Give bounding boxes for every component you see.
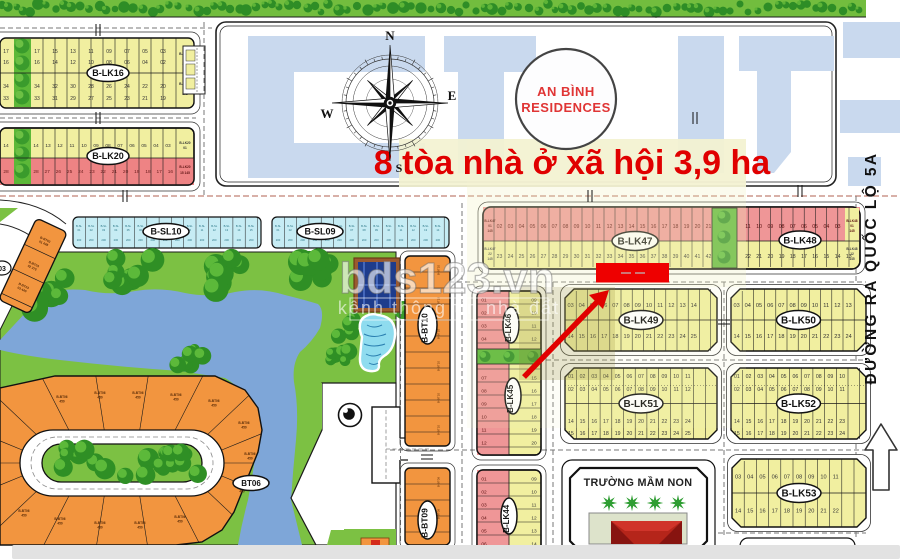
svg-text:16: 16 <box>756 334 762 340</box>
svg-text:03: 03 <box>102 228 105 232</box>
svg-text:19: 19 <box>160 96 166 102</box>
svg-text:ĐƯỜNG RA QUỐC LỘ 5A: ĐƯỜNG RA QUỐC LỘ 5A <box>862 151 880 384</box>
svg-text:450: 450 <box>241 426 247 430</box>
svg-text:AN BÌNH: AN BÌNH <box>537 84 595 99</box>
svg-text:19: 19 <box>781 431 787 437</box>
svg-text:450: 450 <box>21 514 27 518</box>
svg-text:200: 200 <box>89 238 94 242</box>
svg-text:200: 200 <box>200 238 205 242</box>
svg-text:11: 11 <box>833 475 839 481</box>
svg-text:B-BT06: B-BT06 <box>94 521 105 525</box>
svg-text:15 145: 15 145 <box>180 171 190 175</box>
svg-text:16: 16 <box>168 169 174 175</box>
svg-text:19: 19 <box>796 509 802 515</box>
svg-text:01: 01 <box>183 146 187 150</box>
svg-text:29: 29 <box>70 96 76 102</box>
svg-text:07: 07 <box>778 303 784 309</box>
svg-text:16: 16 <box>580 431 586 437</box>
svg-text:33: 33 <box>3 96 9 102</box>
svg-text:450: 450 <box>59 400 65 404</box>
svg-text:450: 450 <box>247 457 253 461</box>
svg-text:B-BT06: B-BT06 <box>134 521 145 525</box>
svg-text:26: 26 <box>56 169 62 175</box>
svg-text:05: 05 <box>141 143 147 149</box>
svg-text:14: 14 <box>3 143 9 149</box>
svg-text:200: 200 <box>187 238 192 242</box>
svg-text:B-BT10: B-BT10 <box>437 393 441 404</box>
svg-text:200: 200 <box>101 238 106 242</box>
svg-text:16: 16 <box>746 431 752 437</box>
svg-text:24: 24 <box>124 84 130 90</box>
svg-text:B-SL: B-SL <box>236 224 242 228</box>
svg-text:B-SL: B-SL <box>199 224 205 228</box>
svg-text:B-SL: B-SL <box>224 224 230 228</box>
svg-text:200: 200 <box>374 238 379 242</box>
svg-text:B-SL: B-SL <box>88 224 94 228</box>
svg-text:02: 02 <box>746 374 752 380</box>
svg-text:200: 200 <box>77 238 82 242</box>
svg-text:15: 15 <box>568 431 574 437</box>
svg-text:200: 200 <box>362 238 367 242</box>
svg-text:15: 15 <box>747 509 753 515</box>
svg-text:09: 09 <box>768 224 774 230</box>
svg-text:21: 21 <box>756 254 762 260</box>
svg-text:11: 11 <box>482 428 487 434</box>
svg-text:04: 04 <box>142 60 148 66</box>
svg-text:03: 03 <box>481 503 487 509</box>
svg-text:B-BT06: B-BT06 <box>132 391 143 395</box>
svg-text:200: 200 <box>126 238 131 242</box>
svg-text:B-SL: B-SL <box>287 224 293 228</box>
svg-text:14: 14 <box>436 228 439 232</box>
svg-text:17: 17 <box>757 431 763 437</box>
svg-text:18: 18 <box>778 334 784 340</box>
svg-text:23: 23 <box>662 431 668 437</box>
svg-text:09: 09 <box>816 387 822 393</box>
svg-text:200: 200 <box>399 238 404 242</box>
svg-text:B-BT06: B-BT06 <box>174 515 185 519</box>
svg-text:B-SL: B-SL <box>125 224 131 228</box>
svg-text:B-SL: B-SL <box>138 224 144 228</box>
svg-text:B-BT06: B-BT06 <box>238 421 249 425</box>
svg-text:04: 04 <box>824 224 830 230</box>
svg-text:B-BT06: B-BT06 <box>208 399 219 403</box>
svg-text:450: 450 <box>135 396 141 400</box>
svg-text:23: 23 <box>839 419 845 425</box>
svg-text:22: 22 <box>823 334 829 340</box>
svg-text:B-SL: B-SL <box>386 224 392 228</box>
svg-text:06: 06 <box>781 387 787 393</box>
svg-text:22: 22 <box>828 419 834 425</box>
svg-text:24: 24 <box>845 334 851 340</box>
svg-text:23: 23 <box>89 169 95 175</box>
svg-text:28: 28 <box>3 169 9 175</box>
svg-text:450: 450 <box>97 396 103 400</box>
svg-text:B-LK20: B-LK20 <box>179 141 190 145</box>
svg-text:22: 22 <box>101 169 107 175</box>
svg-text:17: 17 <box>157 169 163 175</box>
svg-text:22: 22 <box>650 431 656 437</box>
svg-text:08: 08 <box>796 475 802 481</box>
svg-text:450: 450 <box>211 404 217 408</box>
svg-text:17: 17 <box>591 431 597 437</box>
svg-text:17: 17 <box>34 49 40 55</box>
svg-text:28: 28 <box>33 169 39 175</box>
svg-text:200: 200 <box>350 238 355 242</box>
svg-text:05: 05 <box>481 529 487 535</box>
svg-text:15: 15 <box>824 254 830 260</box>
svg-text:21: 21 <box>820 509 826 515</box>
svg-text:16: 16 <box>34 60 40 66</box>
svg-text:20: 20 <box>804 419 810 425</box>
svg-text:B-BT06: B-BT06 <box>18 509 29 513</box>
svg-text:11: 11 <box>532 503 537 509</box>
svg-text:25: 25 <box>106 96 112 102</box>
svg-text:B-LK16: B-LK16 <box>92 68 124 78</box>
svg-text:B-SL: B-SL <box>373 224 379 228</box>
svg-text:06: 06 <box>124 60 130 66</box>
svg-text:01: 01 <box>850 224 854 228</box>
svg-text:19: 19 <box>615 431 621 437</box>
svg-text:20: 20 <box>626 431 632 437</box>
svg-text:01: 01 <box>78 228 81 232</box>
svg-text:B-LK48: B-LK48 <box>783 235 816 246</box>
svg-text:02: 02 <box>160 60 166 66</box>
svg-text:25: 25 <box>67 169 73 175</box>
svg-text:16: 16 <box>757 419 763 425</box>
svg-text:26: 26 <box>106 84 112 90</box>
svg-text:TRƯỜNG MẦM NON: TRƯỜNG MẦM NON <box>584 476 693 489</box>
svg-text:07: 07 <box>792 387 798 393</box>
svg-text:08: 08 <box>779 224 785 230</box>
svg-text:04: 04 <box>114 228 117 232</box>
svg-text:S: S <box>396 161 403 175</box>
svg-text:B-BT06: B-BT06 <box>54 517 65 521</box>
svg-text:04: 04 <box>153 143 159 149</box>
svg-text:24: 24 <box>673 431 679 437</box>
svg-text:B-BT06: B-BT06 <box>56 395 67 399</box>
svg-text:B-BT06: B-BT06 <box>94 391 105 395</box>
svg-text:11: 11 <box>201 228 204 232</box>
svg-text:B-SL: B-SL <box>187 224 193 228</box>
svg-text:B-BT09: B-BT09 <box>437 477 441 488</box>
svg-text:11: 11 <box>839 387 844 393</box>
svg-text:16: 16 <box>812 254 818 260</box>
svg-text:12: 12 <box>213 228 216 232</box>
svg-text:06: 06 <box>767 303 773 309</box>
svg-text:11: 11 <box>400 228 403 232</box>
svg-text:16: 16 <box>3 60 9 66</box>
svg-text:20: 20 <box>792 431 798 437</box>
svg-text:23: 23 <box>834 334 840 340</box>
svg-text:12: 12 <box>834 303 840 309</box>
svg-text:B-SL: B-SL <box>275 224 281 228</box>
svg-text:200: 200 <box>138 238 143 242</box>
svg-text:21: 21 <box>812 334 818 340</box>
svg-text:10: 10 <box>387 228 390 232</box>
svg-text:200: 200 <box>288 238 293 242</box>
svg-text:07: 07 <box>350 228 353 232</box>
svg-text:B-SL: B-SL <box>423 224 429 228</box>
svg-text:02: 02 <box>481 490 487 496</box>
svg-text:24: 24 <box>78 169 84 175</box>
svg-text:01: 01 <box>481 477 487 483</box>
svg-text:21: 21 <box>816 419 822 425</box>
svg-text:02: 02 <box>90 228 93 232</box>
svg-text:34: 34 <box>3 84 9 90</box>
svg-text:22: 22 <box>816 431 822 437</box>
svg-text:01: 01 <box>277 228 280 232</box>
svg-text:11: 11 <box>823 303 829 309</box>
svg-text:200: 200 <box>386 238 391 242</box>
svg-text:B-SL: B-SL <box>410 224 416 228</box>
svg-text:18: 18 <box>790 254 796 260</box>
svg-text:06: 06 <box>129 143 135 149</box>
svg-text:21: 21 <box>638 431 644 437</box>
svg-text:07: 07 <box>784 475 790 481</box>
svg-text:13: 13 <box>70 49 76 55</box>
svg-text:10: 10 <box>756 224 762 230</box>
svg-text:RESIDENCES: RESIDENCES <box>521 100 611 115</box>
svg-text:22: 22 <box>142 84 148 90</box>
svg-text:B-SL: B-SL <box>113 224 119 228</box>
svg-text:10: 10 <box>88 60 94 66</box>
svg-text:200: 200 <box>237 238 242 242</box>
svg-text:18: 18 <box>781 419 787 425</box>
svg-text:09: 09 <box>375 228 378 232</box>
svg-text:200: 200 <box>224 238 229 242</box>
svg-text:03: 03 <box>0 266 6 273</box>
svg-text:14: 14 <box>835 254 841 260</box>
svg-text:21: 21 <box>142 96 148 102</box>
svg-text:B-LK44: B-LK44 <box>502 504 511 533</box>
svg-text:18: 18 <box>784 509 790 515</box>
svg-text:07: 07 <box>804 374 810 380</box>
svg-text:20: 20 <box>531 441 537 447</box>
svg-text:B-LK52: B-LK52 <box>781 399 816 410</box>
svg-text:19: 19 <box>531 428 537 434</box>
svg-text:08: 08 <box>804 387 810 393</box>
svg-text:03: 03 <box>757 374 763 380</box>
svg-text:03: 03 <box>735 475 741 481</box>
svg-text:15: 15 <box>250 228 253 232</box>
svg-text:BT06: BT06 <box>241 479 261 488</box>
svg-text:E: E <box>448 88 457 103</box>
svg-text:19: 19 <box>779 254 785 260</box>
svg-text:bds123.vn: bds123.vn <box>339 254 554 303</box>
svg-text:145: 145 <box>849 257 855 261</box>
svg-text:06: 06 <box>792 374 798 380</box>
svg-text:200: 200 <box>276 238 281 242</box>
svg-text:B-SL: B-SL <box>361 224 367 228</box>
svg-text:05: 05 <box>812 224 818 230</box>
svg-text:09: 09 <box>808 475 814 481</box>
svg-text:20: 20 <box>768 254 774 260</box>
svg-text:17: 17 <box>767 334 773 340</box>
svg-text:B-LK50: B-LK50 <box>781 316 816 327</box>
svg-text:07: 07 <box>124 49 130 55</box>
svg-text:10: 10 <box>828 387 834 393</box>
svg-text:14: 14 <box>33 143 39 149</box>
svg-text:12: 12 <box>57 143 63 149</box>
svg-text:03: 03 <box>165 143 171 149</box>
svg-text:450: 450 <box>57 522 63 526</box>
svg-text:32: 32 <box>52 84 58 90</box>
svg-text:08: 08 <box>816 374 822 380</box>
svg-text:09: 09 <box>828 374 834 380</box>
svg-text:12: 12 <box>70 60 76 66</box>
svg-text:03: 03 <box>746 387 752 393</box>
svg-text:10: 10 <box>531 490 537 496</box>
svg-text:450: 450 <box>173 398 179 402</box>
svg-text:16: 16 <box>759 509 765 515</box>
svg-text:B-SL: B-SL <box>349 224 355 228</box>
svg-text:05: 05 <box>759 475 765 481</box>
svg-text:20: 20 <box>801 334 807 340</box>
svg-text:10: 10 <box>81 143 87 149</box>
svg-text:14: 14 <box>735 509 741 515</box>
svg-text:13: 13 <box>531 529 537 535</box>
svg-text:25: 25 <box>685 431 691 437</box>
svg-text:18: 18 <box>769 431 775 437</box>
svg-text:B-LK20: B-LK20 <box>179 165 190 169</box>
svg-text:20: 20 <box>160 84 166 90</box>
svg-text:19: 19 <box>792 419 798 425</box>
svg-text:18: 18 <box>603 431 609 437</box>
svg-text:B-LK53: B-LK53 <box>781 489 816 500</box>
svg-text:B-LK48: B-LK48 <box>846 247 857 251</box>
svg-text:B-SL: B-SL <box>248 224 254 228</box>
svg-text:W: W <box>321 106 334 121</box>
svg-text:17: 17 <box>3 49 9 55</box>
svg-text:145: 145 <box>849 229 855 233</box>
svg-text:05: 05 <box>142 49 148 55</box>
svg-text:450: 450 <box>137 526 143 530</box>
svg-text:B-BT10: B-BT10 <box>437 425 441 436</box>
svg-text:21: 21 <box>112 169 118 175</box>
svg-text:15: 15 <box>734 431 740 437</box>
svg-text:05: 05 <box>127 228 130 232</box>
svg-text:B-BT06: B-BT06 <box>244 452 255 456</box>
svg-text:B-BT09: B-BT09 <box>420 508 430 538</box>
svg-text:15: 15 <box>52 49 58 55</box>
svg-text:200: 200 <box>436 238 441 242</box>
svg-text:28: 28 <box>88 84 94 90</box>
svg-text:10: 10 <box>820 475 826 481</box>
svg-text:05: 05 <box>756 303 762 309</box>
svg-text:15: 15 <box>746 419 752 425</box>
svg-text:12: 12 <box>531 516 537 522</box>
svg-text:27: 27 <box>88 96 94 102</box>
svg-text:B-SL: B-SL <box>101 224 107 228</box>
svg-text:N: N <box>385 28 395 43</box>
svg-text:12: 12 <box>850 252 854 256</box>
svg-text:200: 200 <box>337 238 342 242</box>
svg-text:B-SL10: B-SL10 <box>150 227 181 237</box>
svg-text:03: 03 <box>160 49 166 55</box>
svg-text:14: 14 <box>52 60 58 66</box>
svg-text:200: 200 <box>114 238 119 242</box>
svg-text:08: 08 <box>363 228 366 232</box>
svg-text:04: 04 <box>757 387 763 393</box>
svg-text:05: 05 <box>781 374 787 380</box>
svg-text:09: 09 <box>531 477 537 483</box>
svg-text:03: 03 <box>835 224 841 230</box>
svg-text:B-SL: B-SL <box>435 224 441 228</box>
svg-text:34: 34 <box>34 84 40 90</box>
svg-text:02: 02 <box>289 228 292 232</box>
svg-text:12: 12 <box>412 228 415 232</box>
svg-text:21: 21 <box>804 431 810 437</box>
svg-text:B-BT10: B-BT10 <box>437 361 441 372</box>
svg-text:11: 11 <box>745 224 750 230</box>
svg-text:450: 450 <box>177 520 183 524</box>
svg-text:450: 450 <box>97 526 103 530</box>
svg-text:13: 13 <box>225 228 228 232</box>
svg-text:23: 23 <box>828 431 834 437</box>
svg-text:17: 17 <box>769 419 775 425</box>
svg-text:13: 13 <box>45 143 51 149</box>
svg-text:24: 24 <box>839 431 845 437</box>
svg-text:04: 04 <box>769 374 775 380</box>
svg-text:06: 06 <box>139 228 142 232</box>
svg-text:18: 18 <box>145 169 151 175</box>
svg-text:07: 07 <box>790 224 796 230</box>
svg-text:B-SL: B-SL <box>76 224 82 228</box>
svg-text:200: 200 <box>212 238 217 242</box>
svg-text:14: 14 <box>237 228 240 232</box>
svg-text:22: 22 <box>833 509 839 515</box>
svg-text:19: 19 <box>789 334 795 340</box>
svg-text:09: 09 <box>801 303 807 309</box>
svg-text:13: 13 <box>845 303 851 309</box>
svg-text:10: 10 <box>839 374 845 380</box>
svg-text:10: 10 <box>812 303 818 309</box>
svg-text:B-LK20: B-LK20 <box>92 151 124 161</box>
svg-text:B-SL09: B-SL09 <box>304 227 335 237</box>
svg-text:kênh thông tin nhà đất: kênh thông tin nhà đất <box>338 298 560 318</box>
svg-text:12: 12 <box>481 441 487 447</box>
svg-text:04: 04 <box>747 475 753 481</box>
svg-text:11: 11 <box>88 49 93 55</box>
svg-text:13: 13 <box>424 228 427 232</box>
svg-text:27: 27 <box>45 169 51 175</box>
svg-text:09: 09 <box>106 49 112 55</box>
svg-text:05: 05 <box>769 387 775 393</box>
svg-text:19: 19 <box>134 169 140 175</box>
svg-text:B-SL: B-SL <box>398 224 404 228</box>
svg-text:06: 06 <box>772 475 778 481</box>
svg-text:17: 17 <box>801 254 807 260</box>
svg-text:200: 200 <box>423 238 428 242</box>
svg-text:20: 20 <box>808 509 814 515</box>
svg-text:20: 20 <box>123 169 129 175</box>
svg-text:8 tòa nhà ở xã hội 3,9 ha: 8 tòa nhà ở xã hội 3,9 ha <box>374 144 771 182</box>
svg-text:31: 31 <box>52 96 58 102</box>
svg-text:B-SL: B-SL <box>211 224 217 228</box>
svg-text:08: 08 <box>789 303 795 309</box>
svg-text:23: 23 <box>124 96 130 102</box>
svg-text:200: 200 <box>411 238 416 242</box>
svg-text:06: 06 <box>801 224 807 230</box>
svg-text:B-LK48: B-LK48 <box>846 219 857 223</box>
svg-text:200: 200 <box>300 238 305 242</box>
svg-text:B-BT06: B-BT06 <box>170 393 181 397</box>
svg-text:30: 30 <box>70 84 76 90</box>
svg-text:11: 11 <box>70 143 75 149</box>
svg-text:33: 33 <box>34 96 40 102</box>
svg-text:200: 200 <box>249 238 254 242</box>
